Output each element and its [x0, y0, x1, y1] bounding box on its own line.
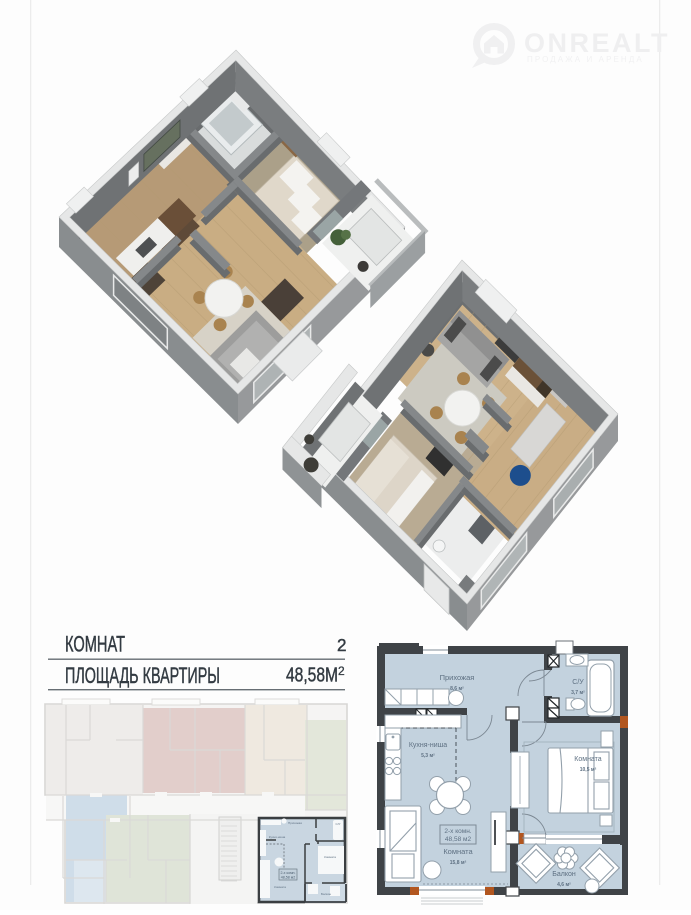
svg-text:2-х комн.: 2-х комн.: [280, 871, 295, 875]
svg-text:С/У: С/У: [572, 679, 584, 686]
svg-text:5,3 м²: 5,3 м²: [421, 753, 435, 759]
svg-text:8,6 м²: 8,6 м²: [450, 686, 464, 692]
svg-text:4,6 м²: 4,6 м²: [557, 882, 571, 888]
svg-text:48,58М: 48,58М: [286, 665, 338, 687]
svg-text:15,8 м²: 15,8 м²: [450, 860, 467, 866]
svg-text:С/У: С/У: [336, 822, 341, 826]
svg-text:Балкон: Балкон: [321, 892, 331, 896]
svg-text:Прихожая: Прихожая: [440, 673, 475, 682]
svg-text:Комната: Комната: [443, 847, 473, 856]
svg-text:Комната: Комната: [574, 756, 602, 763]
svg-text:Комната: Комната: [274, 885, 286, 889]
svg-text:10,5 м²: 10,5 м²: [580, 767, 597, 773]
svg-text:2-х комн.: 2-х комн.: [444, 828, 471, 835]
svg-text:ONREALT: ONREALT: [524, 28, 670, 58]
svg-text:ПРОДАЖА И АРЕНДА: ПРОДАЖА И АРЕНДА: [527, 55, 644, 64]
svg-text:48,58 м2: 48,58 м2: [445, 836, 472, 843]
svg-text:48,58 м2: 48,58 м2: [281, 876, 295, 880]
svg-text:ПЛОЩАДЬ КВАРТИРЫ: ПЛОЩАДЬ КВАРТИРЫ: [65, 663, 220, 688]
svg-text:КОМНАТ: КОМНАТ: [65, 632, 125, 657]
svg-text:Кухня-ниша: Кухня-ниша: [269, 835, 286, 839]
svg-text:Балкон: Балкон: [552, 871, 576, 878]
svg-text:2: 2: [337, 635, 347, 655]
svg-text:Комната: Комната: [324, 855, 336, 859]
svg-text:Кухня-ниша: Кухня-ниша: [409, 742, 447, 749]
svg-text:2: 2: [338, 664, 345, 678]
svg-text:Прихожая: Прихожая: [288, 821, 302, 825]
svg-text:3,7 м²: 3,7 м²: [571, 690, 585, 696]
